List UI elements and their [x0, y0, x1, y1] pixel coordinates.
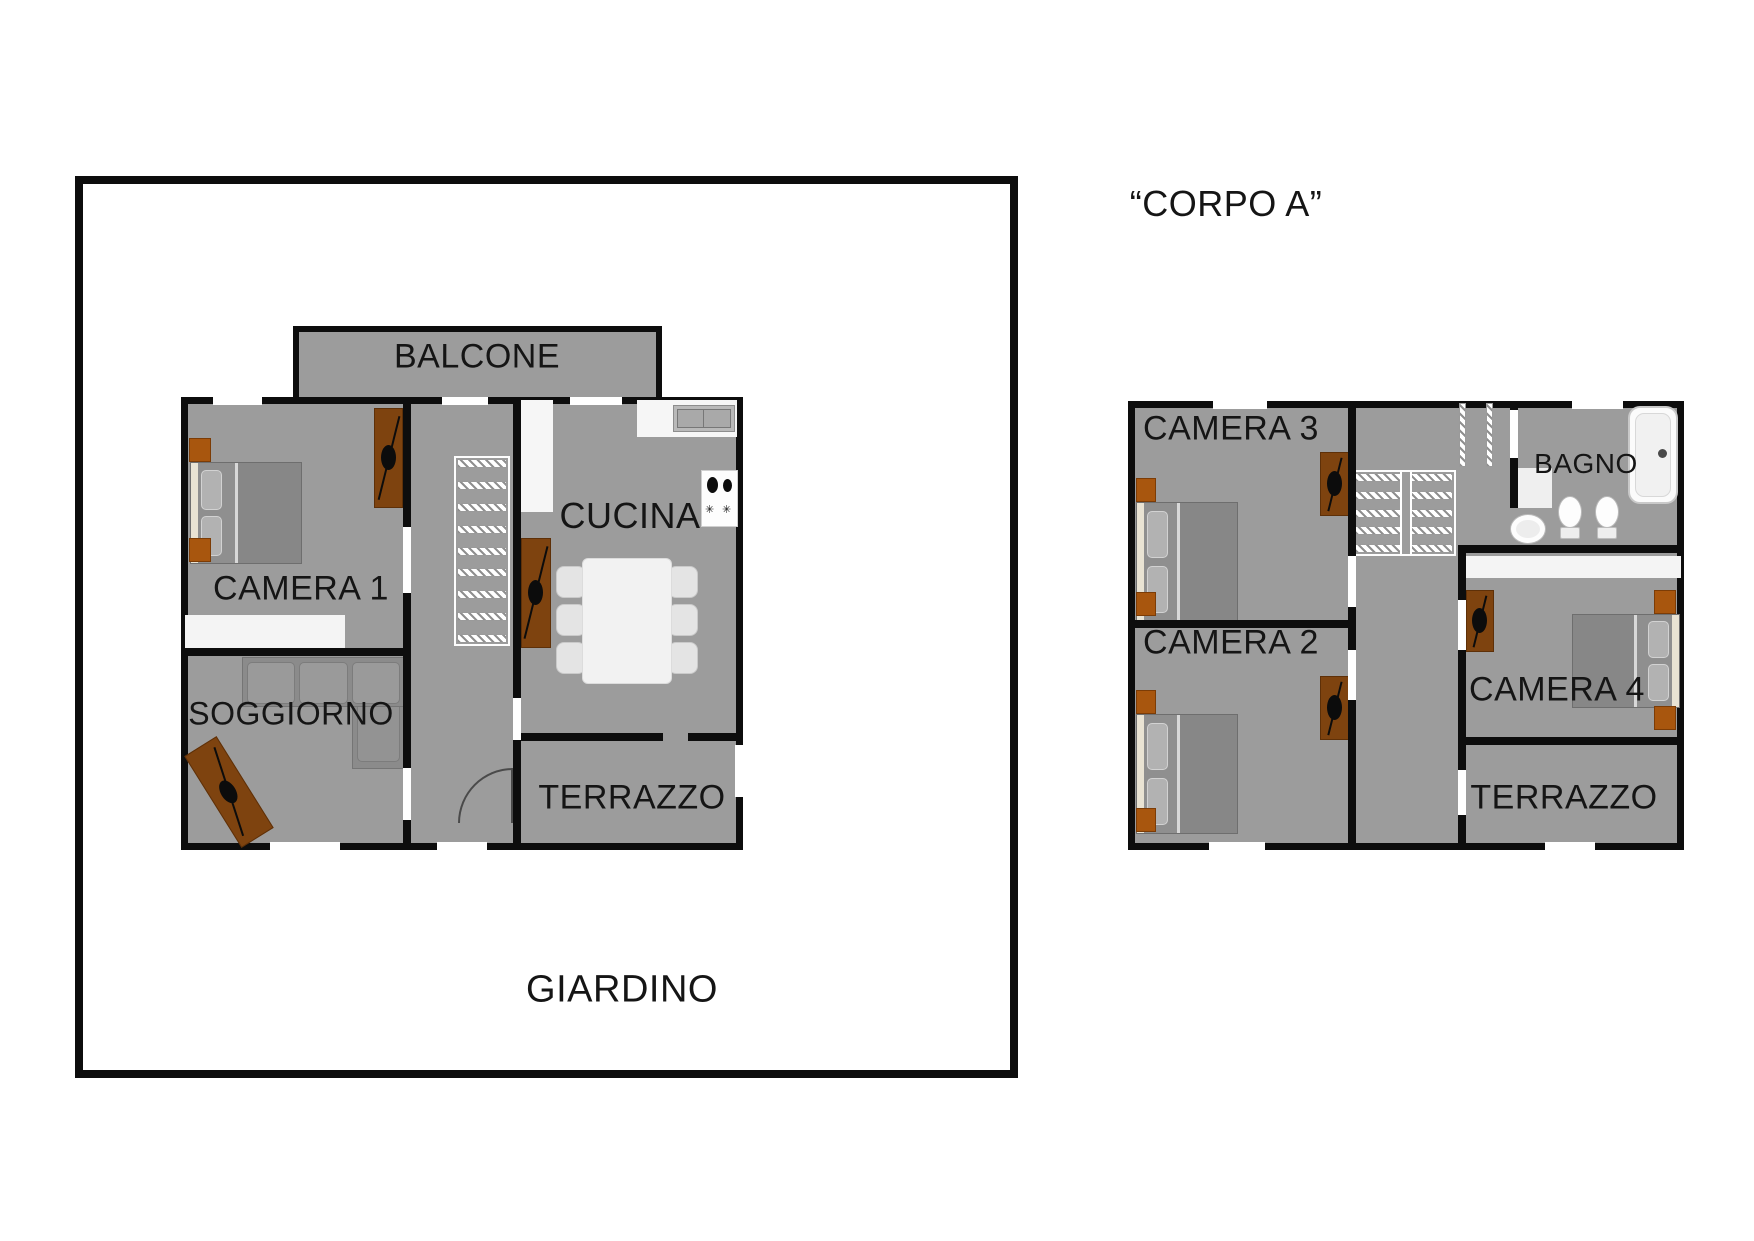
- door-opening-cucina: [513, 698, 521, 740]
- bed-duvet: [1177, 715, 1237, 833]
- soggiorno-label: SOGGIORNO: [188, 696, 393, 733]
- terrazzo-right-label: TERRAZZO: [1470, 779, 1657, 818]
- rug-symbol-camera4: [1466, 590, 1494, 652]
- wall: [181, 648, 411, 656]
- camera1-label: CAMERA 1: [213, 570, 389, 609]
- door-opening-soggiorno: [403, 768, 411, 820]
- toilet-symbol: [1595, 496, 1619, 540]
- nightstand-symbol: [1136, 478, 1156, 502]
- window-opening: [570, 397, 622, 405]
- bed-pillow: [1147, 723, 1168, 770]
- wall: [1458, 737, 1684, 745]
- wall: [1348, 607, 1356, 650]
- chair-symbol: [668, 604, 698, 636]
- nightstand-symbol: [1136, 808, 1156, 832]
- sink-basin: [703, 409, 731, 428]
- bed-duvet: [1177, 503, 1237, 621]
- garden-label: GIARDINO: [526, 969, 718, 1012]
- window-opening: [735, 745, 743, 797]
- wall: [1458, 545, 1466, 600]
- chair-symbol: [668, 642, 698, 674]
- sink-basin: [677, 409, 705, 428]
- wall: [1458, 545, 1684, 553]
- window-opening: [1572, 401, 1623, 409]
- bed-pillow: [1147, 511, 1168, 558]
- corpo-a-title: “CORPO A”: [1130, 183, 1323, 225]
- wall: [688, 733, 743, 741]
- wardrobe-symbol-camera4: [1466, 556, 1681, 578]
- rug-symbol-cucina: [521, 538, 551, 648]
- door-opening-garden: [437, 842, 487, 850]
- toilet-symbol: [1558, 496, 1582, 540]
- door-opening-camera3: [1348, 556, 1356, 607]
- door-opening-camera1: [403, 527, 411, 593]
- stove-burner-icon: ✳: [705, 505, 714, 516]
- staircase-symbol: [454, 456, 510, 646]
- rug-symbol-camera2: [1320, 676, 1350, 740]
- nightstand-symbol: [1654, 590, 1676, 614]
- wall: [513, 397, 521, 698]
- staircase-symbol: [1352, 470, 1456, 556]
- door-opening-bagno: [1510, 410, 1518, 458]
- terrazzo-left-label: TERRAZZO: [538, 779, 725, 818]
- wall: [1348, 700, 1356, 850]
- wall: [403, 820, 411, 850]
- kitchen-sink-symbol: [673, 405, 735, 432]
- window-opening: [1209, 842, 1265, 850]
- wall: [513, 733, 663, 741]
- rug-symbol-camera1: [374, 408, 403, 508]
- bathroom-sink-symbol: [1510, 514, 1546, 544]
- wall: [1348, 401, 1356, 556]
- bagno-label: BAGNO: [1534, 448, 1638, 480]
- floor-plan-canvas: GIARDINO BALCONE ✳ ✳: [0, 0, 1754, 1241]
- wall: [1458, 745, 1466, 770]
- wall: [403, 593, 411, 768]
- camera2-label: CAMERA 2: [1143, 624, 1319, 663]
- stove-burner-icon: [723, 479, 732, 492]
- camera4-label: CAMERA 4: [1469, 671, 1645, 710]
- wall: [1458, 815, 1466, 850]
- window-opening: [1213, 401, 1267, 409]
- door-opening-balcone: [442, 397, 488, 405]
- nightstand-symbol: [1654, 706, 1676, 730]
- wall: [1510, 458, 1518, 508]
- bed-pillow: [1648, 621, 1669, 658]
- stove-symbol: ✳ ✳: [701, 470, 738, 527]
- nightstand-symbol: [1136, 690, 1156, 714]
- stair-rail-symbol: [1459, 403, 1466, 467]
- door-opening-camera2: [1348, 650, 1356, 700]
- stair-rail-symbol: [1486, 403, 1493, 467]
- door-opening-terrazzo: [1458, 770, 1466, 815]
- wardrobe-symbol-camera1: [185, 615, 345, 648]
- wall: [403, 397, 411, 527]
- window-opening: [270, 842, 340, 850]
- wall: [513, 740, 521, 850]
- wall: [1458, 650, 1466, 737]
- camera3-label: CAMERA 3: [1143, 410, 1319, 449]
- window-opening: [213, 397, 262, 405]
- kitchen-counter: [521, 400, 553, 512]
- dining-table-symbol: [582, 558, 672, 684]
- nightstand-symbol: [189, 538, 211, 562]
- wall: [1510, 401, 1518, 410]
- nightstand-symbol: [189, 438, 211, 462]
- chair-symbol: [668, 566, 698, 598]
- bed-headboard: [1672, 615, 1679, 707]
- cucina-label: CUCINA: [559, 495, 700, 537]
- rug-symbol-camera3: [1320, 452, 1350, 516]
- stove-burner-icon: ✳: [722, 505, 731, 516]
- door-opening-camera4: [1458, 600, 1466, 650]
- stove-burner-icon: [707, 477, 718, 493]
- nightstand-symbol: [1136, 592, 1156, 616]
- bed-pillow: [1648, 664, 1669, 701]
- window-opening: [1545, 842, 1595, 850]
- bed-duvet: [235, 463, 301, 563]
- bed-pillow: [201, 470, 222, 510]
- balcone-label: BALCONE: [394, 338, 560, 377]
